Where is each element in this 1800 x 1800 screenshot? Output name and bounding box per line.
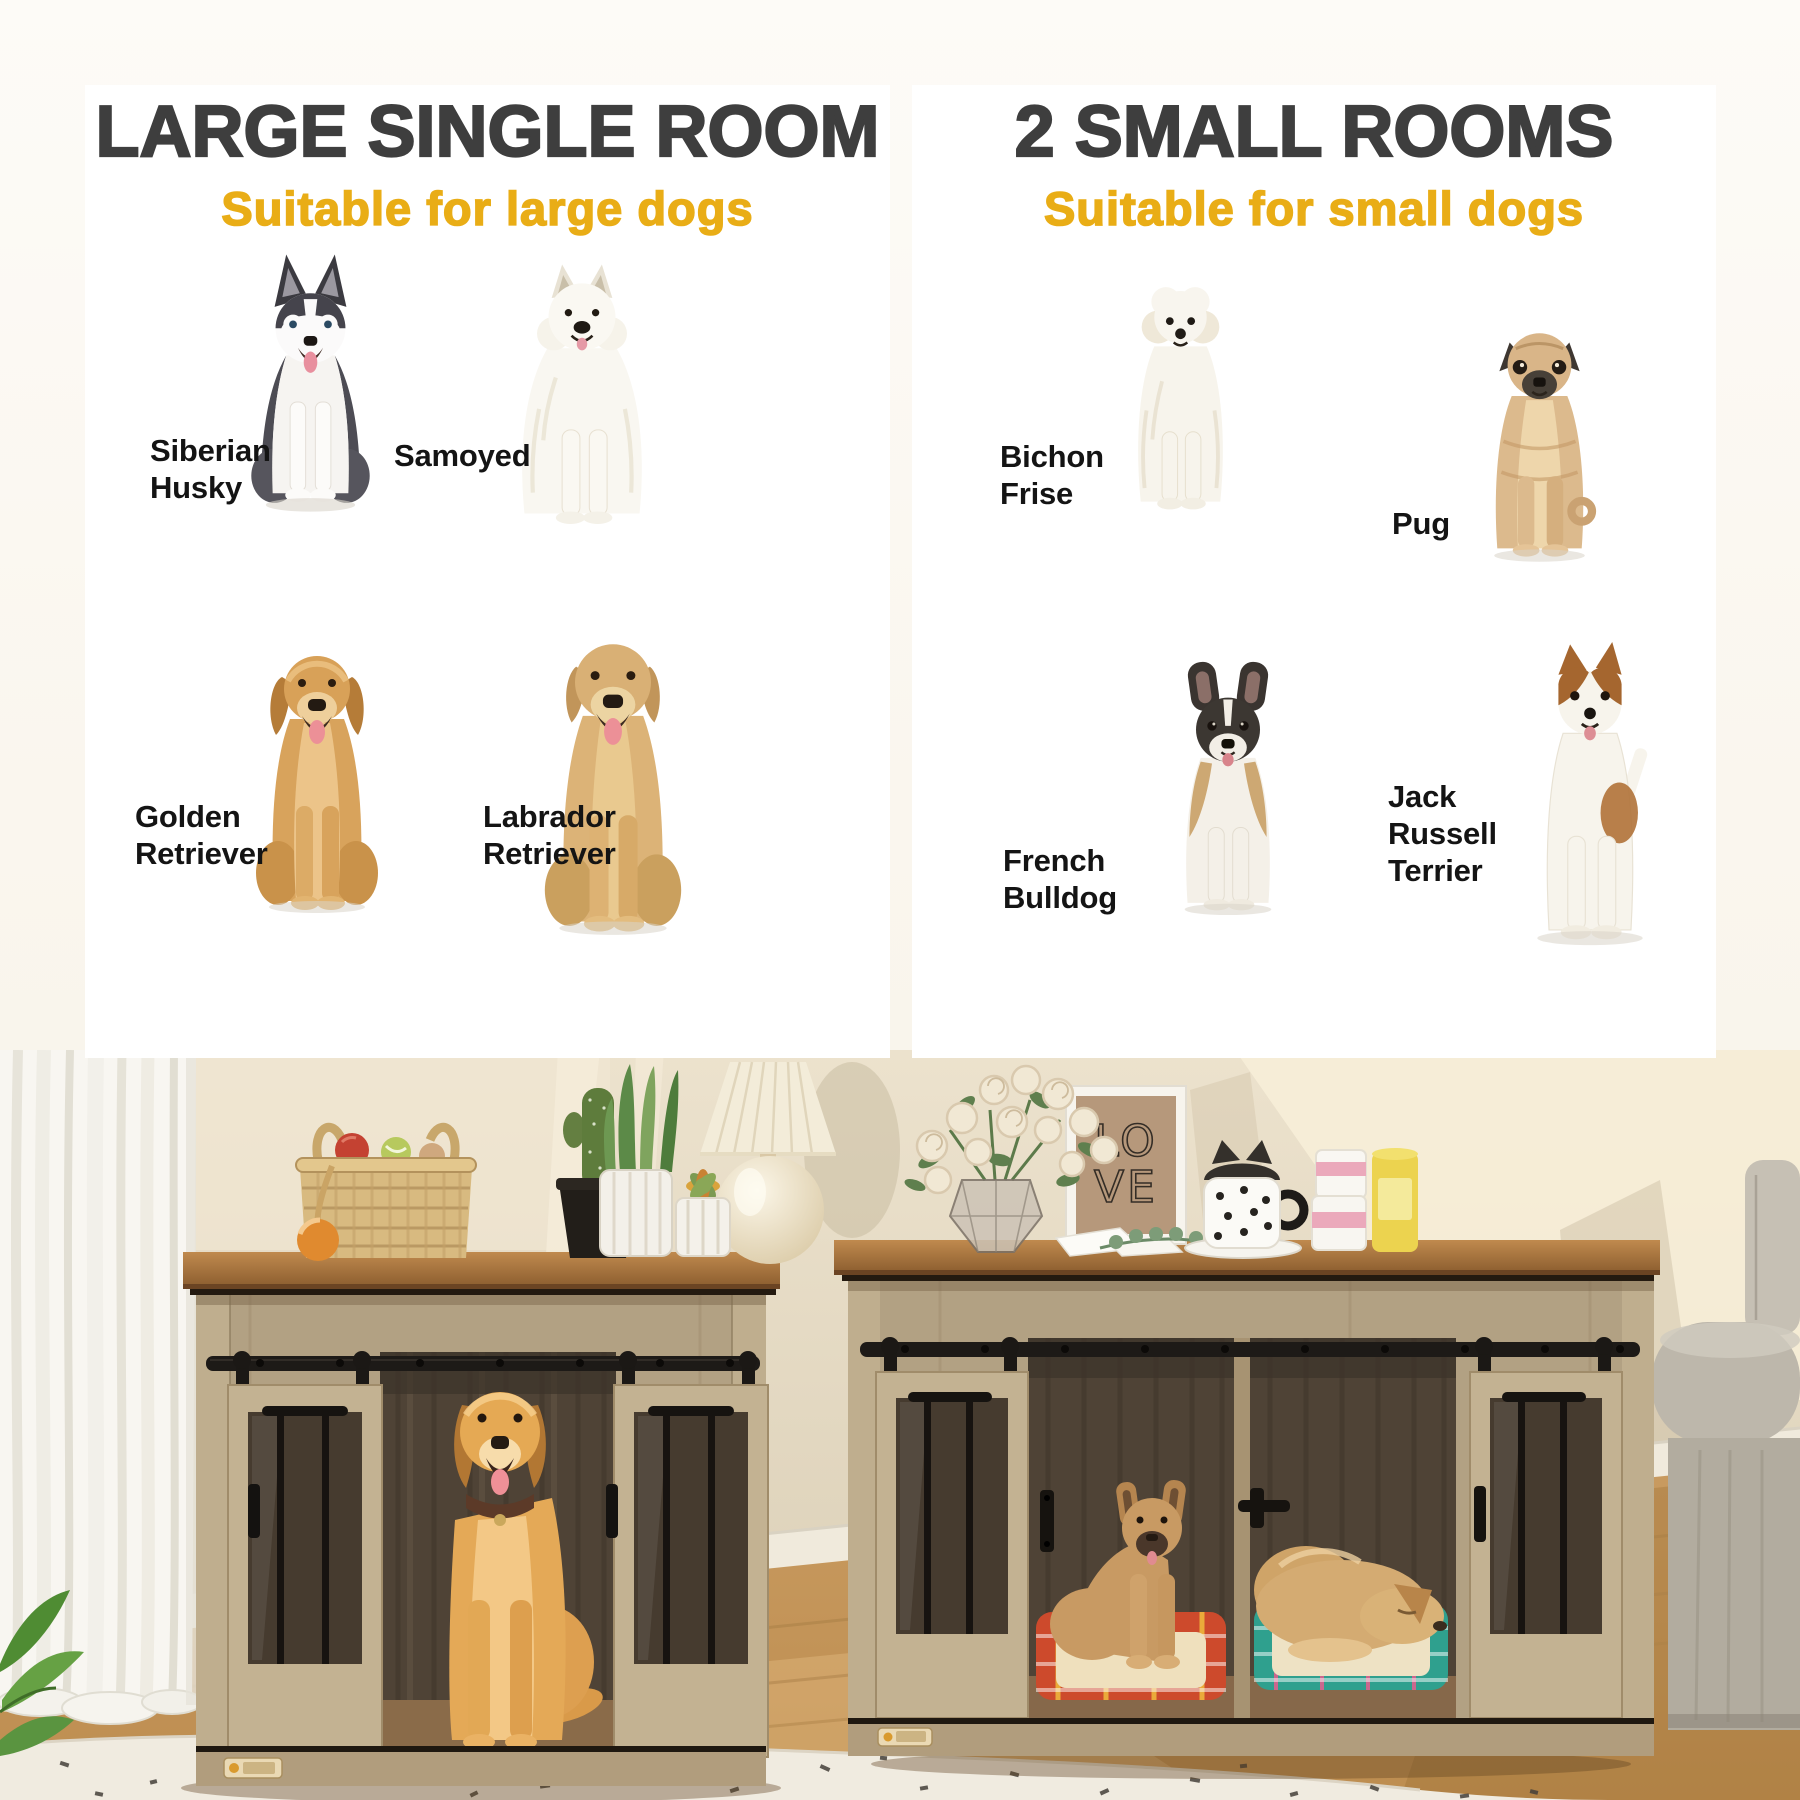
- right-panel-title: 2 SMALL ROOMS: [912, 91, 1716, 173]
- yellow-canister: [1372, 1148, 1418, 1252]
- sliding-door-right: [606, 1385, 768, 1757]
- stacked-containers: [1312, 1150, 1366, 1250]
- golden-retriever-illustration: [232, 582, 402, 945]
- lifestyle-photo: LO VE: [0, 1050, 1800, 1800]
- panel-two-small-rooms: 2 SMALL ROOMS Suitable for small dogs Bi…: [912, 85, 1716, 1058]
- living-room-scene: LO VE: [0, 1050, 1800, 1800]
- sliding-door-left: [228, 1385, 382, 1757]
- labrador-retriever-illustration: [518, 585, 708, 950]
- left-panel-title: LARGE SINGLE ROOM: [85, 91, 890, 173]
- bichon-frise-illustration: [1098, 255, 1263, 532]
- breed-label-pug: Pug: [1392, 505, 1482, 542]
- panel-large-single-room: LARGE SINGLE ROOM Suitable for large dog…: [85, 85, 890, 1058]
- love-print-line2: VE: [1094, 1162, 1158, 1213]
- brand-logo-plaque: [224, 1758, 282, 1778]
- left-panel-subtitle: Suitable for large dogs: [85, 181, 890, 236]
- samoyed-illustration: [492, 252, 672, 529]
- brand-logo-plaque-right: [878, 1728, 932, 1746]
- breed-label-samoyed: Samoyed: [394, 437, 554, 474]
- right-panel-subtitle: Suitable for small dogs: [912, 181, 1716, 236]
- breed-label-siberian-husky: Siberian Husky: [150, 432, 280, 506]
- sliding-door-room2: [1470, 1372, 1622, 1718]
- breed-label-bichon-frise: Bichon Frise: [1000, 438, 1115, 512]
- breed-label-labrador-retriever: Labrador Retriever: [483, 798, 628, 872]
- product-infographic: LO VE: [0, 0, 1800, 1800]
- breed-label-jack-russell-terrier: Jack Russell Terrier: [1388, 778, 1508, 890]
- breed-label-golden-retriever: Golden Retriever: [135, 798, 270, 872]
- sliding-door-room1: [876, 1372, 1028, 1718]
- french-bulldog-illustration: [1148, 632, 1308, 949]
- breed-label-french-bulldog: French Bulldog: [1003, 842, 1128, 916]
- jack-russell-terrier-illustration: [1490, 635, 1690, 956]
